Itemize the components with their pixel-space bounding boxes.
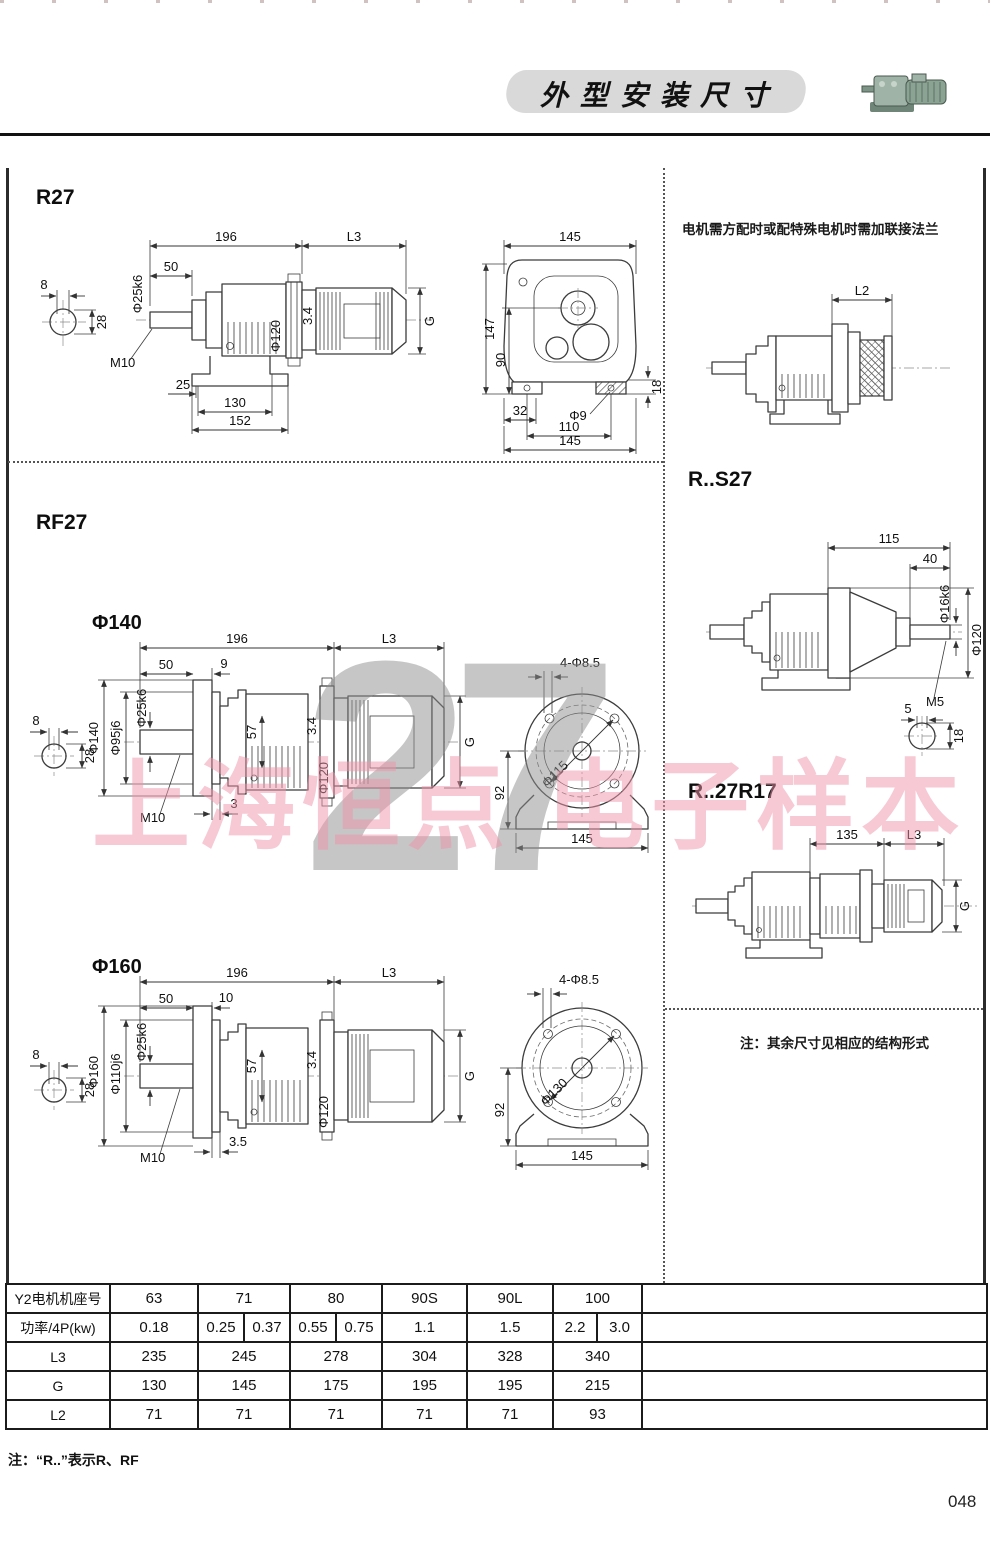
svg-text:28: 28 <box>94 315 109 329</box>
svg-text:Φ16k6: Φ16k6 <box>937 585 952 624</box>
svg-text:10: 10 <box>219 990 233 1005</box>
svg-text:M5: M5 <box>926 694 944 709</box>
svg-text:M10: M10 <box>140 1150 165 1165</box>
svg-text:L2: L2 <box>855 283 869 298</box>
heading-r27r17: R..27R17 <box>688 780 777 804</box>
cell: 304 <box>382 1342 467 1371</box>
cell: 175 <box>290 1371 382 1400</box>
svg-text:L3: L3 <box>382 631 396 646</box>
svg-text:152: 152 <box>229 413 251 428</box>
svg-text:3.4: 3.4 <box>304 1051 319 1069</box>
cell: 71 <box>467 1400 553 1429</box>
dimension-table: Y2电机机座号 63 71 80 90S 90L 100 功率/4P(kw) 0… <box>5 1283 988 1430</box>
svg-text:147: 147 <box>482 318 497 340</box>
svg-text:196: 196 <box>215 229 237 244</box>
cell: 71 <box>382 1400 467 1429</box>
row-label: L3 <box>6 1342 110 1371</box>
page-title: 外型安装尺寸 <box>540 74 790 114</box>
svg-text:3: 3 <box>230 796 237 811</box>
row-label: Y2电机机座号 <box>6 1284 110 1313</box>
rf27-140-face-drawing: Φ115 4-Φ8.5 92 145 <box>494 645 666 863</box>
frame-left <box>6 168 9 1283</box>
svg-text:145: 145 <box>559 229 581 244</box>
table-row-l2: L2 71 71 71 71 71 93 <box>6 1400 987 1429</box>
svg-text:145: 145 <box>559 433 581 448</box>
cell: 100 <box>553 1284 642 1313</box>
svg-text:145: 145 <box>571 831 593 846</box>
cell: 3.0 <box>597 1313 642 1342</box>
page-number: 048 <box>948 1492 976 1512</box>
cell: 0.75 <box>336 1313 382 1342</box>
svg-text:32: 32 <box>513 403 527 418</box>
cell-empty <box>642 1342 987 1371</box>
svg-text:110: 110 <box>559 419 580 434</box>
cell: 0.25 <box>198 1313 244 1342</box>
cell: 245 <box>198 1342 290 1371</box>
cell: 71 <box>198 1400 290 1429</box>
scan-artifacts <box>0 0 990 3</box>
section-divider-right <box>665 1008 983 1010</box>
svg-text:Φ25k6: Φ25k6 <box>134 1023 149 1062</box>
heading-rf27: RF27 <box>36 511 87 535</box>
row-label: L2 <box>6 1400 110 1429</box>
structure-note: 注：其余尺寸见相应的结构形式 <box>740 1032 929 1052</box>
cell: 90S <box>382 1284 467 1313</box>
cell: 340 <box>553 1342 642 1371</box>
svg-text:3.4: 3.4 <box>300 307 315 325</box>
cell: 71 <box>290 1400 382 1429</box>
svg-text:Φ95j6: Φ95j6 <box>108 721 123 756</box>
gearmotor-photo <box>860 62 960 124</box>
flange-option-drawing: L2 <box>700 276 972 432</box>
cell: 215 <box>553 1371 642 1400</box>
svg-text:L3: L3 <box>907 827 921 842</box>
cell: 145 <box>198 1371 290 1400</box>
svg-text:3.4: 3.4 <box>304 717 319 735</box>
svg-text:Φ25k6: Φ25k6 <box>134 689 149 728</box>
rf27-140-side-drawing: 8 28 Φ140 Φ95j6 Φ25k6 50 9 57 3.4 Φ120 <box>28 628 490 836</box>
cell: 80 <box>290 1284 382 1313</box>
table-row-g: G 130 145 175 195 195 215 <box>6 1371 987 1400</box>
cell: 71 <box>110 1400 198 1429</box>
svg-text:4-Φ8.5: 4-Φ8.5 <box>559 972 599 987</box>
cell: 2.2 <box>553 1313 597 1342</box>
cell: 195 <box>467 1371 553 1400</box>
cell: 0.18 <box>110 1313 198 1342</box>
cell: 1.1 <box>382 1313 467 1342</box>
svg-text:50: 50 <box>159 991 173 1006</box>
rf27-160-face-drawing: Φ130 4-Φ8.5 92 145 <box>494 962 666 1180</box>
svg-text:3.5: 3.5 <box>229 1134 247 1149</box>
svg-text:G: G <box>422 316 437 326</box>
cell: 0.55 <box>290 1313 336 1342</box>
cell: 63 <box>110 1284 198 1313</box>
row-label: 功率/4P(kw) <box>6 1313 110 1342</box>
cell: 90L <box>467 1284 553 1313</box>
svg-text:8: 8 <box>40 277 47 292</box>
cell: 195 <box>382 1371 467 1400</box>
svg-text:57: 57 <box>244 1059 259 1073</box>
cell-empty <box>642 1400 987 1429</box>
cell: 0.37 <box>244 1313 290 1342</box>
rf27-160-side-drawing: 8 28 Φ160 Φ110j6 Φ25k6 50 10 57 3.4 Φ120 <box>28 962 490 1170</box>
svg-text:Φ120: Φ120 <box>316 762 331 794</box>
svg-text:8: 8 <box>32 713 39 728</box>
svg-text:4-Φ8.5: 4-Φ8.5 <box>560 655 600 670</box>
svg-text:92: 92 <box>492 1103 507 1117</box>
r27-side-drawing: 8 28 196 L3 50 Φ25k6 M10 Φ120 3.4 <box>30 226 475 461</box>
svg-text:G: G <box>957 901 972 911</box>
row-label: G <box>6 1371 110 1400</box>
svg-text:196: 196 <box>226 631 248 646</box>
svg-text:Φ120: Φ120 <box>969 624 984 656</box>
cell: 328 <box>467 1342 553 1371</box>
cell: 71 <box>198 1284 290 1313</box>
table-row-frame: Y2电机机座号 63 71 80 90S 90L 100 <box>6 1284 987 1313</box>
cell: 1.5 <box>467 1313 553 1342</box>
svg-text:Φ120: Φ120 <box>268 320 283 352</box>
cell-empty <box>642 1313 987 1342</box>
svg-text:115: 115 <box>879 531 900 546</box>
svg-text:18: 18 <box>649 380 664 394</box>
svg-text:90: 90 <box>493 353 508 367</box>
cell-empty <box>642 1284 987 1313</box>
r27r17-drawing: 135 L3 G <box>688 826 988 978</box>
svg-text:G: G <box>462 737 477 747</box>
svg-text:Φ110j6: Φ110j6 <box>108 1053 123 1094</box>
heading-r27: R27 <box>36 186 75 210</box>
svg-text:5: 5 <box>904 701 911 716</box>
svg-text:L3: L3 <box>382 965 396 980</box>
svg-text:57: 57 <box>244 725 259 739</box>
header-rule <box>0 133 990 136</box>
svg-text:50: 50 <box>159 657 173 672</box>
heading-rs27: R..S27 <box>688 468 752 492</box>
svg-text:Φ120: Φ120 <box>316 1096 331 1128</box>
svg-text:50: 50 <box>164 259 178 274</box>
table-row-l3: L3 235 245 278 304 328 340 <box>6 1342 987 1371</box>
table-row-power: 功率/4P(kw) 0.18 0.25 0.37 0.55 0.75 1.1 1… <box>6 1313 987 1342</box>
rs27-drawing: 115 40 Φ16k6 Φ120 M5 5 18 <box>700 520 985 766</box>
svg-text:25: 25 <box>176 377 190 392</box>
svg-text:18: 18 <box>951 729 966 743</box>
catalog-page: 外型安装尺寸 R27 RF27 Φ140 Φ160 电机需方配时或配特殊电机时需… <box>0 0 990 1550</box>
svg-text:Φ25k6: Φ25k6 <box>130 275 145 314</box>
svg-text:G: G <box>462 1071 477 1081</box>
cell: 278 <box>290 1342 382 1371</box>
svg-text:92: 92 <box>492 786 507 800</box>
svg-text:L3: L3 <box>347 229 361 244</box>
cell: 130 <box>110 1371 198 1400</box>
cell: 235 <box>110 1342 198 1371</box>
svg-text:Φ140: Φ140 <box>86 722 101 754</box>
r27-end-drawing: 145 147 90 18 32 Φ9 110 145 <box>478 230 674 456</box>
svg-text:145: 145 <box>571 1148 593 1163</box>
svg-text:8: 8 <box>32 1047 39 1062</box>
svg-text:M10: M10 <box>140 810 165 825</box>
svg-text:196: 196 <box>226 965 248 980</box>
flange-note: 电机需方配时或配特殊电机时需加联接法兰 <box>682 218 977 238</box>
cell-empty <box>642 1371 987 1400</box>
section-divider-left <box>8 461 663 463</box>
svg-text:40: 40 <box>923 551 937 566</box>
svg-text:135: 135 <box>836 827 858 842</box>
footer-note: 注：“R..”表示R、RF <box>8 1450 139 1470</box>
cell: 93 <box>553 1400 642 1429</box>
svg-text:130: 130 <box>224 395 246 410</box>
svg-text:Φ160: Φ160 <box>86 1056 101 1088</box>
svg-text:9: 9 <box>220 656 227 671</box>
